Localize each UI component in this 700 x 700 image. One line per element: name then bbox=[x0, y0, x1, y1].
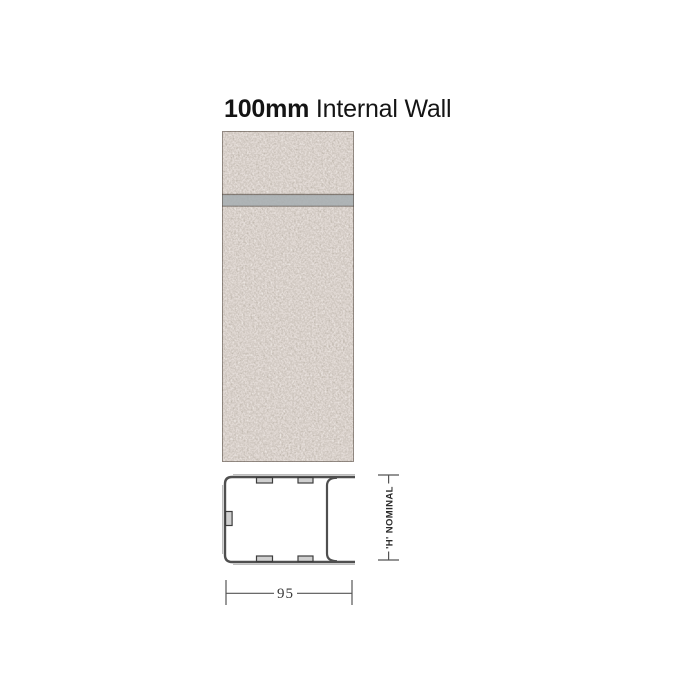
block-speckle-texture bbox=[222, 131, 354, 462]
keying-dimples bbox=[226, 478, 313, 562]
height-dimension-label: 'H' NOMINAL bbox=[385, 486, 396, 549]
title-size-text: 100mm bbox=[224, 95, 309, 123]
dimple-top-right bbox=[298, 478, 313, 483]
dimple-bottom-right bbox=[298, 556, 313, 561]
lintel-right-web bbox=[327, 478, 337, 561]
mortar-joint bbox=[222, 195, 354, 206]
masonry-wall-image bbox=[222, 131, 354, 462]
lintel-cross-section-drawing: 95 'H' NOMINAL bbox=[195, 455, 425, 625]
title-label-text: Internal Wall bbox=[316, 95, 451, 123]
mortar-joint-bottom-edge bbox=[222, 206, 354, 207]
width-dimension-label: 95 bbox=[277, 586, 294, 602]
lintel-cross-section: 95 'H' NOMINAL bbox=[195, 455, 425, 625]
dimple-top-left bbox=[257, 478, 273, 483]
lintel-outer-profile bbox=[225, 477, 355, 562]
metal-highlight-lines bbox=[223, 475, 355, 565]
product-diagram-page: 100mm Internal Wall bbox=[0, 0, 700, 700]
masonry-texture bbox=[222, 131, 354, 462]
page-title: 100mm Internal Wall bbox=[224, 96, 451, 122]
dimple-left-side bbox=[226, 512, 233, 526]
dimple-bottom-left bbox=[257, 556, 273, 561]
mortar-joint-top-edge bbox=[222, 194, 354, 195]
